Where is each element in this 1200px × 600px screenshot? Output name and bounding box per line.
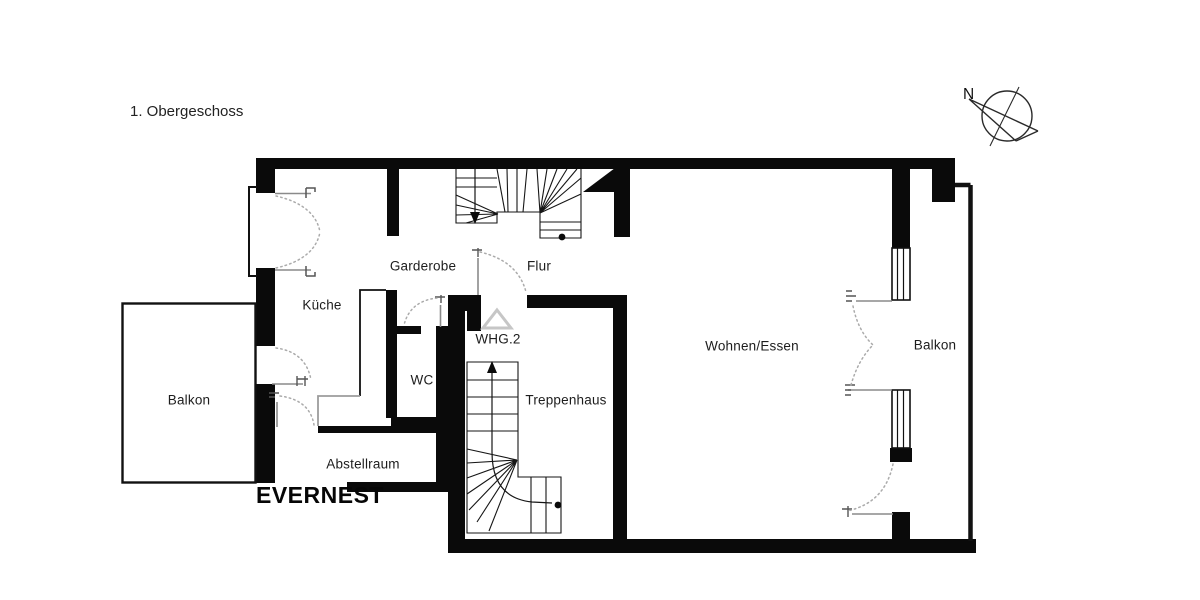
room-label-balkon-links: Balkon	[168, 393, 210, 408]
room-label-wohnen-essen: Wohnen/Essen	[705, 339, 799, 354]
brand-watermark: EVERNEST	[256, 482, 384, 509]
stair-newel-dot-2	[555, 502, 562, 509]
floor-plan-drawing	[0, 0, 1200, 600]
door-wc	[404, 295, 445, 327]
compass-needle	[969, 99, 1038, 141]
room-label-balkon-rechts: Balkon	[914, 338, 956, 353]
stairs-top	[456, 169, 581, 240]
juliet-balcony-rail	[249, 187, 257, 276]
stair-down-arrow	[470, 212, 480, 224]
whg2-entrance-marker	[483, 310, 511, 328]
floor-plan-page: 1. Obergeschoss N Küche Garderobe Flur W…	[0, 0, 1200, 600]
window-upper	[892, 248, 910, 300]
compass-north-label: N	[963, 86, 974, 104]
room-label-flur: Flur	[527, 259, 551, 274]
room-label-abstellraum: Abstellraum	[326, 457, 399, 472]
stairs-treppenhaus	[467, 361, 561, 533]
room-label-treppenhaus: Treppenhaus	[525, 393, 606, 408]
room-label-garderobe: Garderobe	[390, 259, 456, 274]
stair-up-arrow	[487, 361, 497, 373]
stair-newel-dot	[559, 234, 566, 241]
section-cut-triangle	[583, 168, 615, 192]
windows	[892, 248, 910, 448]
window-lower	[892, 390, 910, 448]
compass	[969, 87, 1038, 146]
door-whg2-entry	[472, 248, 526, 295]
door-balcony-right-lower	[842, 464, 893, 517]
room-label-wc: WC	[411, 373, 434, 388]
french-door-left	[275, 188, 320, 276]
french-door-right	[845, 291, 892, 395]
compass-cross-line	[990, 87, 1019, 146]
room-label-whg2: WHG.2	[475, 332, 520, 347]
door-abstellraum	[269, 393, 314, 427]
door-kueche-balcony	[272, 348, 311, 386]
floor-title: 1. Obergeschoss	[130, 103, 243, 120]
room-label-kueche: Küche	[302, 298, 341, 313]
balcony-right-outline	[955, 185, 971, 541]
